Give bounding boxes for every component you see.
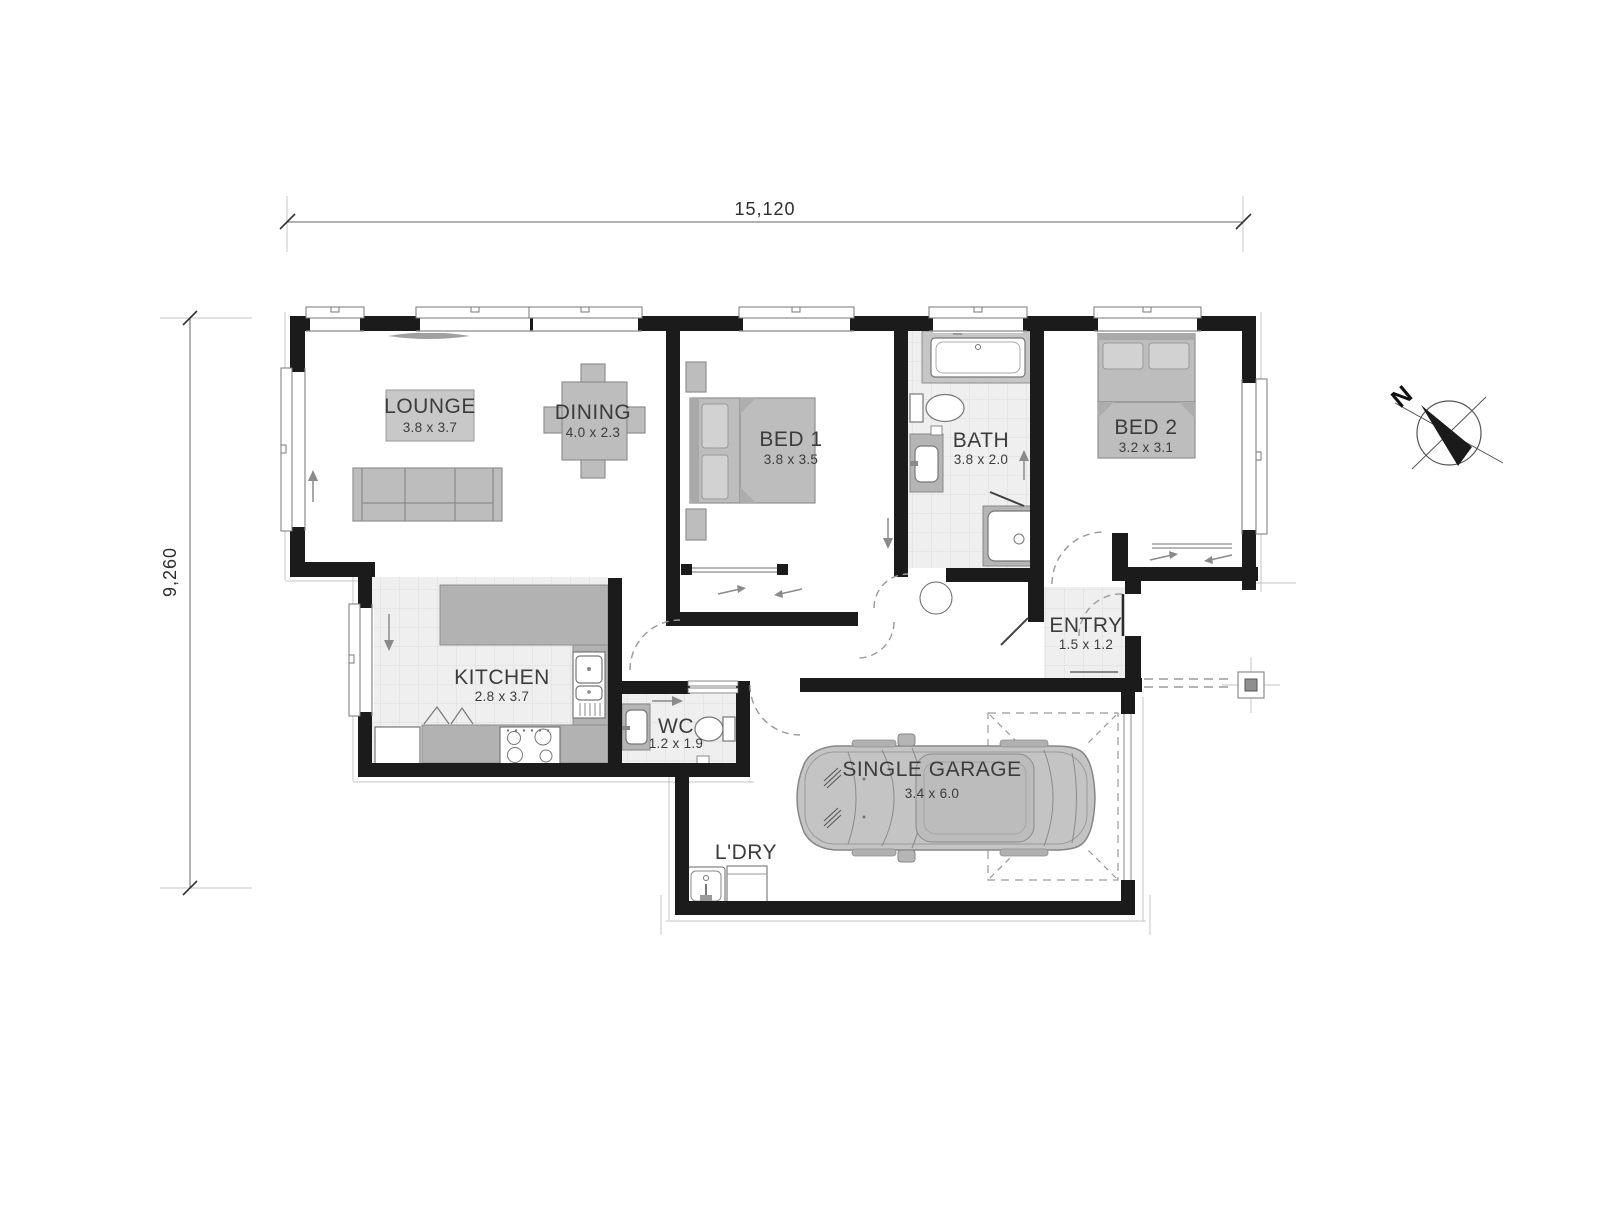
north-label: N [1386,380,1418,413]
wall-wc-top [608,681,690,694]
wall-wc-right [736,681,750,777]
compass: N [1386,380,1503,469]
wall-laundry-left [675,763,689,915]
wall-bath-bottom [946,568,1043,582]
mirror [898,734,915,746]
garage-size: 3.4 x 6.0 [905,786,960,801]
window [929,307,1027,333]
laundry-tub [687,867,725,905]
floor-plan-page: 15,120 9,260 [0,0,1600,1217]
porch-post [1144,657,1280,713]
wall-bath-right [1030,316,1044,582]
bed1-fixtures [681,362,893,598]
window [1240,379,1267,534]
pillow [1149,343,1189,369]
wall-garage-top [800,678,1142,692]
wall-bath-left [894,316,908,577]
bath-door-arc [874,574,908,608]
wc-vanity [622,704,650,750]
overall-depth-dimension: 9,260 [160,547,180,597]
pillow [1103,343,1143,369]
garage-door-arc [750,685,800,735]
window [529,307,642,333]
bathtub [922,326,1034,383]
bath-label: BATH [953,429,1009,452]
washing-machine-space [727,866,767,905]
dining-chair [581,364,605,382]
wall-kitchen-right [608,578,622,777]
entry-hall-door-leaf [1001,618,1028,645]
window [1094,307,1201,333]
wall-bed1-left [666,316,680,626]
bed2-door-arc [1052,532,1104,584]
hall-lounge-door-arc [630,620,680,670]
wc-slider-door [688,681,738,693]
window [739,307,854,333]
bath-size: 3.8 x 2.0 [954,452,1009,467]
kitchen-label: KITCHEN [454,666,550,689]
wall-garage-bottom [675,901,1135,915]
window [281,368,307,531]
bed1-door-arc [858,622,894,658]
mirror [898,850,915,862]
kitchen-size: 2.8 x 3.7 [475,689,530,704]
bedside-table [686,362,706,392]
dining-label: DINING [555,401,632,424]
laundry-label: L'DRY [715,841,777,864]
bed1-headboard [690,398,699,503]
window [416,307,534,333]
dimension-top: 15,120 [280,196,1251,252]
wall-entry-left [1028,582,1044,622]
entry-label: ENTRY [1049,614,1122,637]
stove [500,727,560,765]
bed2-size: 3.2 x 3.1 [1119,440,1174,455]
bed1-label: BED 1 [759,428,822,451]
window [306,307,364,333]
bedside-table [686,509,706,540]
wc-size: 1.2 x 1.9 [649,736,704,751]
bath-vanity [910,426,943,492]
wc-label: WC [658,715,694,738]
dimension-left: 9,260 [160,311,252,895]
lounge-size: 3.8 x 3.7 [403,420,458,435]
laundry-fixtures [687,866,767,905]
garage-label: SINGLE GARAGE [842,758,1021,781]
hall-arrow [883,518,893,549]
lounge-label: LOUNGE [384,395,476,418]
overall-width-dimension: 15,120 [734,199,795,219]
dining-size: 4.0 x 2.3 [566,425,621,440]
wall-bed1-bottom [666,612,858,626]
pillow [702,404,728,448]
garage-vehicle-door [1119,714,1137,880]
bed2-robe [1150,544,1232,564]
compass-needle [1421,405,1472,466]
bed1-robe [681,564,802,598]
entry-size: 1.5 x 1.2 [1059,637,1114,652]
wall-bottom-kitchen-wc [358,763,750,777]
floor-plan-drawing: 15,120 9,260 [0,0,1600,1217]
shelf [388,333,470,340]
hot-water-cylinder [920,582,952,614]
kitchen-counter-top [440,585,608,645]
dining-chair [581,460,605,478]
lounge-window-arrow [308,470,318,502]
window [349,604,374,716]
fridge-space [375,727,420,765]
bath-toilet [910,394,964,422]
bed2-headboard [1098,332,1195,340]
bed2-label: BED 2 [1114,416,1177,439]
sofa [353,468,502,521]
kitchen-sink [573,652,605,718]
pillow [702,455,728,499]
bed1-size: 3.8 x 3.5 [764,452,819,467]
